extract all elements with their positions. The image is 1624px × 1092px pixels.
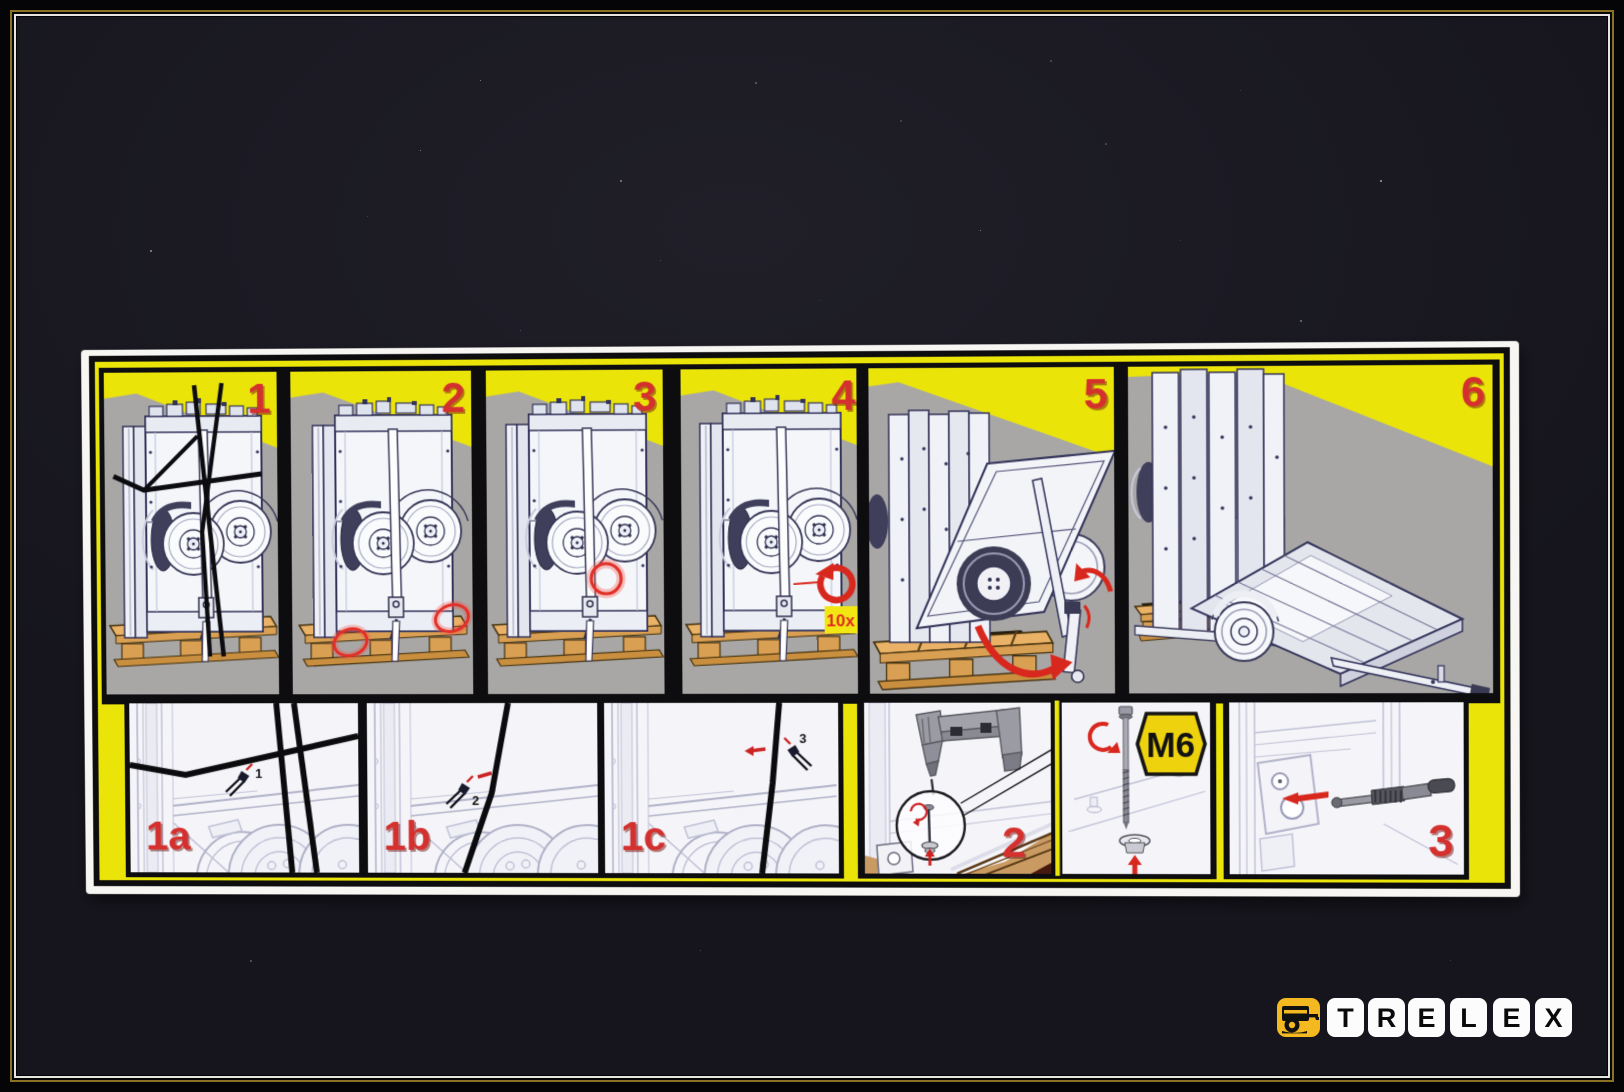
svg-text:1a: 1a	[146, 812, 191, 858]
svg-text:3: 3	[633, 373, 657, 421]
svg-text:6: 6	[1461, 368, 1486, 417]
svg-text:1c: 1c	[621, 813, 667, 860]
svg-text:1: 1	[255, 766, 262, 781]
svg-text:2: 2	[1002, 819, 1026, 867]
svg-text:2: 2	[472, 793, 479, 808]
svg-text:M6: M6	[1146, 726, 1195, 765]
svg-text:1: 1	[247, 375, 271, 423]
svg-text:1b: 1b	[383, 812, 430, 858]
svg-text:4: 4	[831, 372, 856, 420]
svg-text:5: 5	[1084, 370, 1108, 418]
svg-text:3: 3	[1428, 816, 1454, 866]
svg-text:10x: 10x	[826, 611, 855, 630]
svg-text:2: 2	[441, 374, 465, 422]
svg-text:3: 3	[799, 731, 806, 746]
